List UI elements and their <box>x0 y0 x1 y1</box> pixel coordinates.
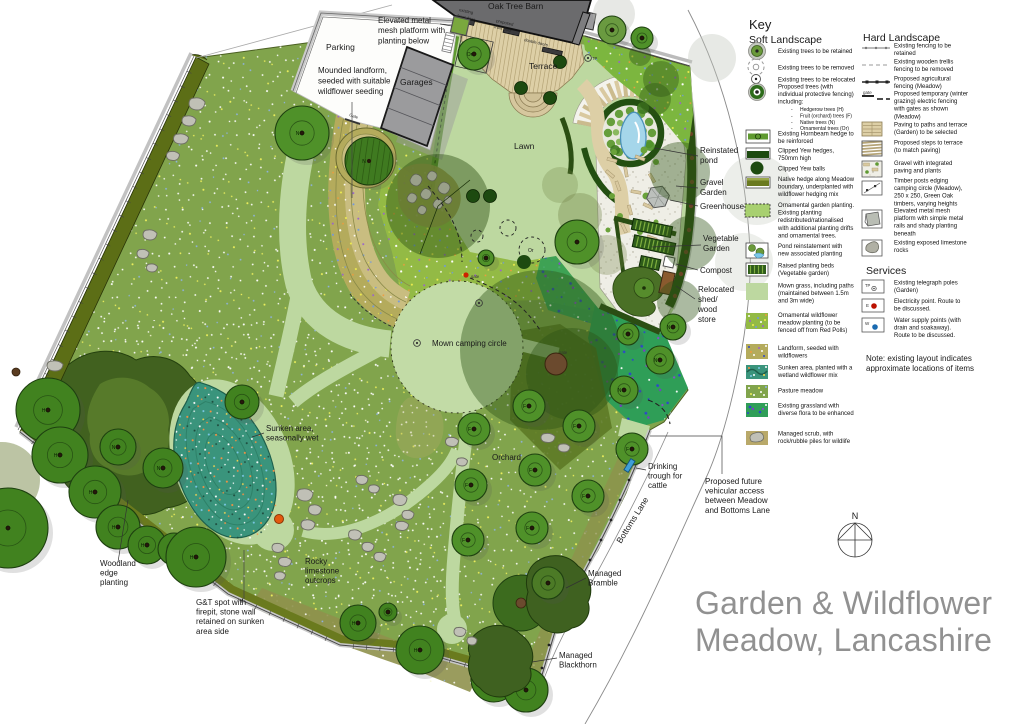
svg-text:Pond reinstatement with: Pond reinstatement with <box>778 244 842 250</box>
svg-text:between Meadow: between Meadow <box>705 496 768 505</box>
svg-text:Managed: Managed <box>588 569 621 578</box>
svg-text:new associated planting: new associated planting <box>778 252 842 258</box>
svg-text:Existing grassland with: Existing grassland with <box>778 404 839 410</box>
svg-text:Drinking: Drinking <box>648 462 677 471</box>
svg-text:Proposed future: Proposed future <box>705 477 762 486</box>
svg-text:H: H <box>190 555 194 561</box>
svg-text:rocks: rocks <box>894 248 908 254</box>
svg-text:N: N <box>618 388 622 394</box>
svg-text:Clipped Yew hedges,: Clipped Yew hedges, <box>778 149 834 155</box>
svg-text:planting below: planting below <box>378 36 429 45</box>
svg-text:retained: retained <box>894 51 916 57</box>
svg-text:Sunken area, planted with a: Sunken area, planted with a <box>778 366 853 372</box>
svg-text:timbers, varying heights: timbers, varying heights <box>894 201 957 207</box>
svg-text:Elevated metal: Elevated metal <box>378 16 431 25</box>
svg-text:(Garden): (Garden) <box>894 288 918 294</box>
svg-text:Hedgerow trees (H): Hedgerow trees (H) <box>800 107 844 113</box>
svg-text:Managed scrub, with: Managed scrub, with <box>778 432 833 438</box>
svg-text:Gravel with integrated: Gravel with integrated <box>894 161 952 167</box>
svg-text:fencing (Meadow): fencing (Meadow) <box>894 84 942 90</box>
svg-text:be reinforced: be reinforced <box>778 139 813 145</box>
svg-text:Clipped Yew balls: Clipped Yew balls <box>778 167 825 173</box>
svg-text:Blackthorn: Blackthorn <box>559 661 597 670</box>
svg-text:fenced off from Red Polls): fenced off from Red Polls) <box>778 328 847 334</box>
svg-text:(Meadow): (Meadow) <box>894 114 921 120</box>
svg-text:H: H <box>42 408 46 414</box>
svg-text:limestone: limestone <box>305 567 340 576</box>
svg-text:(maintained between 1.5m: (maintained between 1.5m <box>778 291 849 297</box>
svg-text:Garden: Garden <box>703 244 730 253</box>
svg-text:Existing planting: Existing planting <box>778 211 822 217</box>
svg-text:Paving to paths and terrace: Paving to paths and terrace <box>894 123 968 129</box>
svg-text:including:: including: <box>778 100 804 106</box>
svg-text:F: F <box>465 483 468 489</box>
svg-text:and 3m wide): and 3m wide) <box>778 299 814 305</box>
svg-text:Gravel: Gravel <box>700 178 724 187</box>
svg-text:N: N <box>112 445 116 451</box>
svg-text:Garden & Wildflower: Garden & Wildflower <box>695 585 992 621</box>
svg-text:with additional planting drift: with additional planting drifts <box>777 226 853 232</box>
svg-text:trough for: trough for <box>648 472 683 481</box>
svg-text:N: N <box>296 131 300 137</box>
svg-text:gate: gate <box>863 90 872 95</box>
svg-text:firepit, stone wall: firepit, stone wall <box>196 608 256 617</box>
svg-text:wildflower seeding: wildflower seeding <box>317 87 383 96</box>
svg-text:retained on sunken: retained on sunken <box>196 617 264 626</box>
svg-text:Or: Or <box>467 52 473 58</box>
svg-text:outcrops: outcrops <box>305 576 336 585</box>
svg-text:wildflowers: wildflowers <box>777 354 807 360</box>
svg-text:seasonally wet: seasonally wet <box>266 434 319 443</box>
svg-text:mesh platform with: mesh platform with <box>378 26 445 35</box>
svg-text:Reinstated: Reinstated <box>700 146 738 155</box>
svg-text:area side: area side <box>196 627 229 636</box>
svg-text:approximate locations of items: approximate locations of items <box>866 364 974 373</box>
svg-text:N: N <box>157 466 161 472</box>
svg-text:Native hedge along Meadow: Native hedge along Meadow <box>778 177 855 183</box>
svg-text:Proposed agricultural: Proposed agricultural <box>894 77 951 83</box>
svg-text:F: F <box>626 447 629 453</box>
svg-text:Or: Or <box>528 248 534 254</box>
svg-text:planting: planting <box>100 578 128 587</box>
svg-text:Meadow, Lancashire: Meadow, Lancashire <box>695 622 992 658</box>
svg-text:Compost: Compost <box>700 266 733 275</box>
svg-text:be discussed.: be discussed. <box>894 307 931 313</box>
svg-text:wildflower hedging mix: wildflower hedging mix <box>777 192 838 198</box>
svg-text:Existing fencing to be: Existing fencing to be <box>894 44 952 50</box>
svg-text:N: N <box>654 358 658 364</box>
svg-text:Greenhouse: Greenhouse <box>700 202 745 211</box>
svg-text:fencing to be removed: fencing to be removed <box>894 67 953 73</box>
svg-text:with gates as shown: with gates as shown <box>893 107 948 113</box>
svg-text:Oak Tree Barn: Oak Tree Barn <box>488 1 544 11</box>
svg-text:Existing trees to be relocated: Existing trees to be relocated <box>778 78 855 84</box>
svg-text:H: H <box>141 543 145 549</box>
svg-text:H: H <box>112 525 116 531</box>
svg-text:drain and soakaway).: drain and soakaway). <box>894 326 951 332</box>
svg-text:Key: Key <box>749 17 772 32</box>
svg-text:Existing exposed limestone: Existing exposed limestone <box>894 241 967 247</box>
svg-text:F: F <box>529 468 532 474</box>
svg-text:gate: gate <box>471 274 480 279</box>
svg-text:boundary, underplanted with: boundary, underplanted with <box>778 185 853 191</box>
svg-text:250 x 250, Green Oak: 250 x 250, Green Oak <box>894 194 954 200</box>
svg-text:cattle: cattle <box>648 481 668 490</box>
svg-text:edge: edge <box>100 569 118 578</box>
svg-text:N: N <box>362 159 366 165</box>
svg-text:Hard Landscape: Hard Landscape <box>863 32 940 44</box>
svg-text:Water supply points (with: Water supply points (with <box>894 318 961 324</box>
svg-text:rails and shady planting: rails and shady planting <box>894 224 957 230</box>
svg-text:shed/: shed/ <box>698 295 718 304</box>
svg-text:TP: TP <box>592 56 598 61</box>
svg-text:beneath: beneath <box>894 231 916 237</box>
svg-text:(Vegetable garden): (Vegetable garden) <box>778 271 829 277</box>
svg-text:TP: TP <box>865 283 871 288</box>
svg-text:Sunken area,: Sunken area, <box>266 424 314 433</box>
svg-text:Landform, seeded with: Landform, seeded with <box>778 346 839 352</box>
svg-text:platform with simple metal: platform with simple metal <box>894 216 963 222</box>
svg-text:Proposed temporary (winter: Proposed temporary (winter <box>894 92 968 98</box>
svg-text:Raised planting beds: Raised planting beds <box>778 264 834 270</box>
svg-text:and Bottoms Lane: and Bottoms Lane <box>705 506 770 515</box>
svg-text:Native trees (N): Native trees (N) <box>800 120 835 126</box>
svg-text:Fruit (orchard) trees (F): Fruit (orchard) trees (F) <box>800 113 852 119</box>
svg-text:vehicular access: vehicular access <box>705 487 764 496</box>
svg-text:Garden: Garden <box>700 188 727 197</box>
svg-text:redistributed/rationalised: redistributed/rationalised <box>778 218 843 224</box>
svg-text:E: E <box>866 303 869 308</box>
svg-text:rock/rubble piles for wildlife: rock/rubble piles for wildlife <box>778 439 851 445</box>
svg-text:N: N <box>667 325 671 331</box>
svg-text:Existing trees to be removed: Existing trees to be removed <box>778 66 854 72</box>
svg-text:Mown camping circle: Mown camping circle <box>432 339 507 348</box>
svg-text:N: N <box>852 511 859 521</box>
svg-text:Managed: Managed <box>559 651 592 660</box>
svg-text:Pasture meadow: Pasture meadow <box>778 389 824 395</box>
svg-text:Vegetable: Vegetable <box>703 234 739 243</box>
svg-text:Relocated: Relocated <box>698 285 734 294</box>
svg-text:paving and plants: paving and plants <box>894 169 941 175</box>
svg-text:diverse flora to be enhanced: diverse flora to be enhanced <box>778 411 854 417</box>
svg-text:Proposed trees (with: Proposed trees (with <box>778 85 833 91</box>
svg-text:meadow planting (to be: meadow planting (to be <box>778 321 841 327</box>
svg-text:(Garden) to be selected: (Garden) to be selected <box>894 130 957 136</box>
svg-text:Existing Hornbeam hedge to: Existing Hornbeam hedge to <box>778 132 854 138</box>
svg-text:camping circle (Meadow),: camping circle (Meadow), <box>894 186 963 192</box>
svg-text:Existing trees to be retained: Existing trees to be retained <box>778 49 852 55</box>
svg-text:Garages: Garages <box>400 77 433 87</box>
svg-text:Route to be discussed.: Route to be discussed. <box>894 333 955 339</box>
svg-text:F: F <box>462 538 465 544</box>
svg-text:F: F <box>582 494 585 500</box>
svg-text:Parking: Parking <box>326 42 355 52</box>
svg-text:F: F <box>526 526 529 532</box>
svg-text:Mounded landform,: Mounded landform, <box>318 66 387 75</box>
svg-text:Ornamental wildflower: Ornamental wildflower <box>778 313 837 319</box>
svg-text:H: H <box>414 648 418 654</box>
svg-text:Electricity point. Route to: Electricity point. Route to <box>894 299 961 305</box>
svg-text:pond: pond <box>700 156 718 165</box>
svg-text:Existing wooden trellis: Existing wooden trellis <box>894 60 953 66</box>
svg-text:H: H <box>54 453 58 459</box>
svg-text:Proposed steps to terrace: Proposed steps to terrace <box>894 141 963 147</box>
svg-text:wetland wildflower mix: wetland wildflower mix <box>777 373 838 379</box>
svg-text:Rocky: Rocky <box>305 557 327 566</box>
svg-text:Terrace: Terrace <box>529 61 558 71</box>
svg-text:grazing) electric fencing: grazing) electric fencing <box>894 99 957 105</box>
svg-text:wood: wood <box>697 305 717 314</box>
svg-text:Ornamental garden planting.: Ornamental garden planting. <box>778 203 854 209</box>
svg-text:Lawn: Lawn <box>514 141 535 151</box>
svg-text:Elevated metal mesh: Elevated metal mesh <box>894 209 950 215</box>
svg-text:(to match paving): (to match paving) <box>894 148 940 154</box>
svg-text:H: H <box>89 490 93 496</box>
svg-text:Bramble: Bramble <box>588 579 618 588</box>
svg-text:and ornamental trees.: and ornamental trees. <box>778 233 837 239</box>
svg-text:Mown grass, including paths: Mown grass, including paths <box>778 284 854 290</box>
svg-text:Existing telegraph poles: Existing telegraph poles <box>894 281 958 287</box>
svg-text:Timber posts edging: Timber posts edging <box>894 179 948 185</box>
svg-text:seeded with suitable: seeded with suitable <box>318 77 391 86</box>
svg-text:750mm high: 750mm high <box>778 156 811 162</box>
svg-text:Orchard: Orchard <box>492 453 521 462</box>
svg-text:F: F <box>523 404 526 410</box>
svg-text:H: H <box>352 621 356 627</box>
svg-text:Services: Services <box>866 265 906 277</box>
svg-text:individual protective fencing): individual protective fencing) <box>778 92 854 98</box>
svg-text:F: F <box>573 424 576 430</box>
svg-text:Note: existing layout indicate: Note: existing layout indicates <box>866 354 972 363</box>
svg-text:store: store <box>698 315 716 324</box>
svg-text:G&T spot with: G&T spot with <box>196 598 246 607</box>
svg-text:F: F <box>468 427 471 433</box>
